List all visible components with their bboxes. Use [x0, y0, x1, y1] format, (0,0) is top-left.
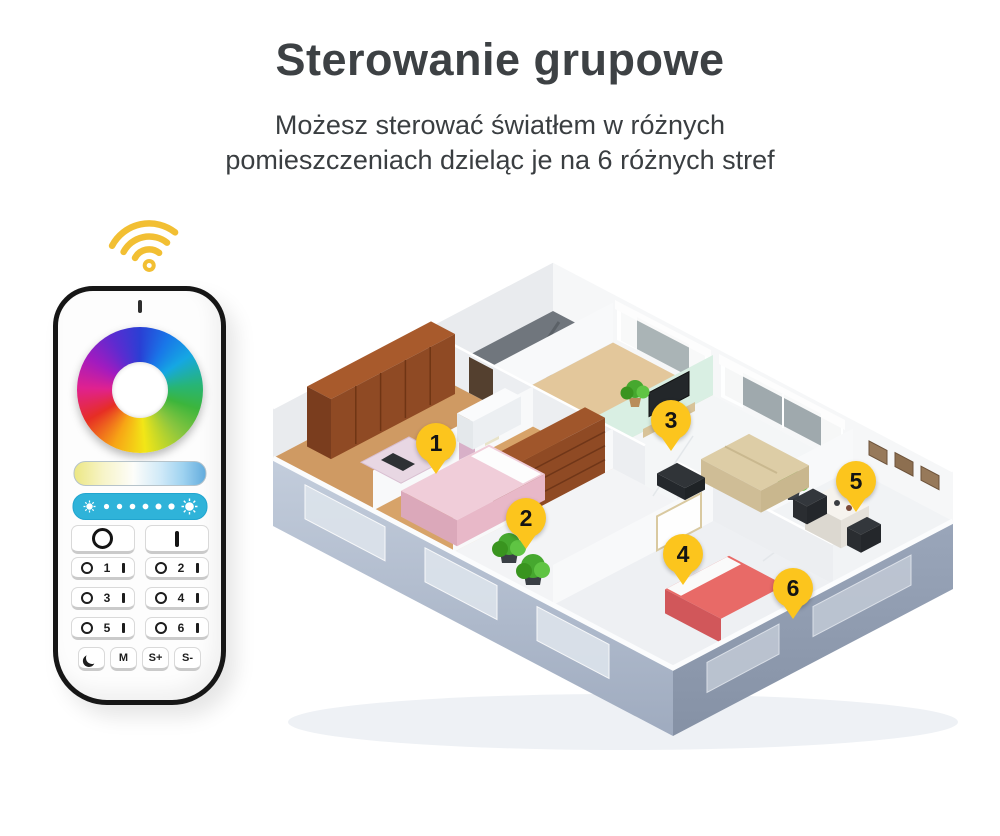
zone-marker-tail [845, 496, 867, 512]
speed-up-label: S+ [149, 652, 163, 664]
zone-number-label: 5 [104, 622, 111, 634]
zone-on-icon [122, 593, 125, 603]
zone-number-label: 2 [178, 562, 185, 574]
page: Sterowanie grupowe Możesz sterować świat… [0, 0, 1000, 836]
zone-2-button[interactable]: 2 [145, 557, 209, 580]
subtitle-line-1: Możesz sterować światłem w różnych [275, 110, 725, 140]
zone-4-button[interactable]: 4 [145, 587, 209, 610]
zone-on-icon [196, 623, 199, 633]
zone-marker-number: 2 [520, 507, 533, 530]
crescent-moon-icon [85, 651, 99, 665]
led-indicator [138, 300, 142, 313]
zone-marker-tail [515, 533, 537, 549]
zone-marker-6: 6 [773, 568, 813, 608]
wifi-signal-icon [90, 199, 198, 284]
page-subtitle: Możesz sterować światłem w różnych pomie… [0, 108, 1000, 178]
color-wheel[interactable] [77, 327, 203, 453]
zone-6-button[interactable]: 6 [145, 617, 209, 640]
remote-control: 123456 M S+ S- [53, 286, 226, 705]
speed-up-button[interactable]: S+ [142, 647, 169, 671]
zone-number-label: 6 [178, 622, 185, 634]
zone-number-label: 1 [104, 562, 111, 574]
zone-5-button[interactable]: 5 [71, 617, 135, 640]
zone-marker-tail [672, 569, 694, 585]
color-temperature-slider[interactable] [73, 461, 206, 486]
zone-off-icon [81, 592, 93, 604]
power-on-icon [175, 531, 179, 547]
power-button-row [58, 525, 221, 554]
speed-down-button[interactable]: S- [174, 647, 201, 671]
zone-marker-number: 5 [850, 470, 863, 493]
zone-marker-number: 4 [677, 543, 690, 566]
zone-3-button[interactable]: 3 [71, 587, 135, 610]
brightness-slider-scale [73, 494, 206, 519]
mode-button-label: M [119, 652, 128, 664]
zone-off-icon [155, 592, 167, 604]
zone-marker-1: 1 [416, 423, 456, 463]
page-title: Sterowanie grupowe [0, 34, 1000, 86]
zone-marker-tail [782, 603, 804, 619]
zone-marker-number: 6 [787, 577, 800, 600]
zone-marker-number: 3 [665, 409, 678, 432]
brightness-slider[interactable] [72, 493, 207, 520]
mode-button[interactable]: M [110, 647, 137, 671]
function-button-row: M S+ S- [58, 647, 221, 671]
zone-marker-tail [660, 435, 682, 451]
floor-plan: 123456 [263, 256, 963, 766]
zone-marker-3: 3 [651, 400, 691, 440]
zone-marker-4: 4 [663, 534, 703, 574]
zone-on-icon [196, 593, 199, 603]
zone-on-icon [196, 563, 199, 573]
master-off-button[interactable] [71, 525, 135, 554]
zone-marker-5: 5 [836, 461, 876, 501]
zone-number-label: 3 [104, 592, 111, 604]
zone-off-icon [81, 562, 93, 574]
night-mode-button[interactable] [78, 647, 105, 671]
zone-on-icon [122, 563, 125, 573]
zone-marker-tail [425, 458, 447, 474]
subtitle-line-2: pomieszczeniach dzieląc je na 6 różnych … [225, 145, 774, 175]
speed-down-label: S- [182, 652, 193, 664]
zone-off-icon [155, 622, 167, 634]
zone-off-icon [155, 562, 167, 574]
zone-marker-number: 1 [430, 432, 443, 455]
power-off-icon [92, 528, 113, 549]
zone-on-icon [122, 623, 125, 633]
zone-1-button[interactable]: 1 [71, 557, 135, 580]
zone-off-icon [81, 622, 93, 634]
zone-marker-2: 2 [506, 498, 546, 538]
zone-buttons: 123456 [58, 557, 221, 640]
large-sun-icon [181, 499, 197, 515]
zone-number-label: 4 [178, 592, 185, 604]
small-sun-icon [83, 501, 95, 513]
master-on-button[interactable] [145, 525, 209, 554]
